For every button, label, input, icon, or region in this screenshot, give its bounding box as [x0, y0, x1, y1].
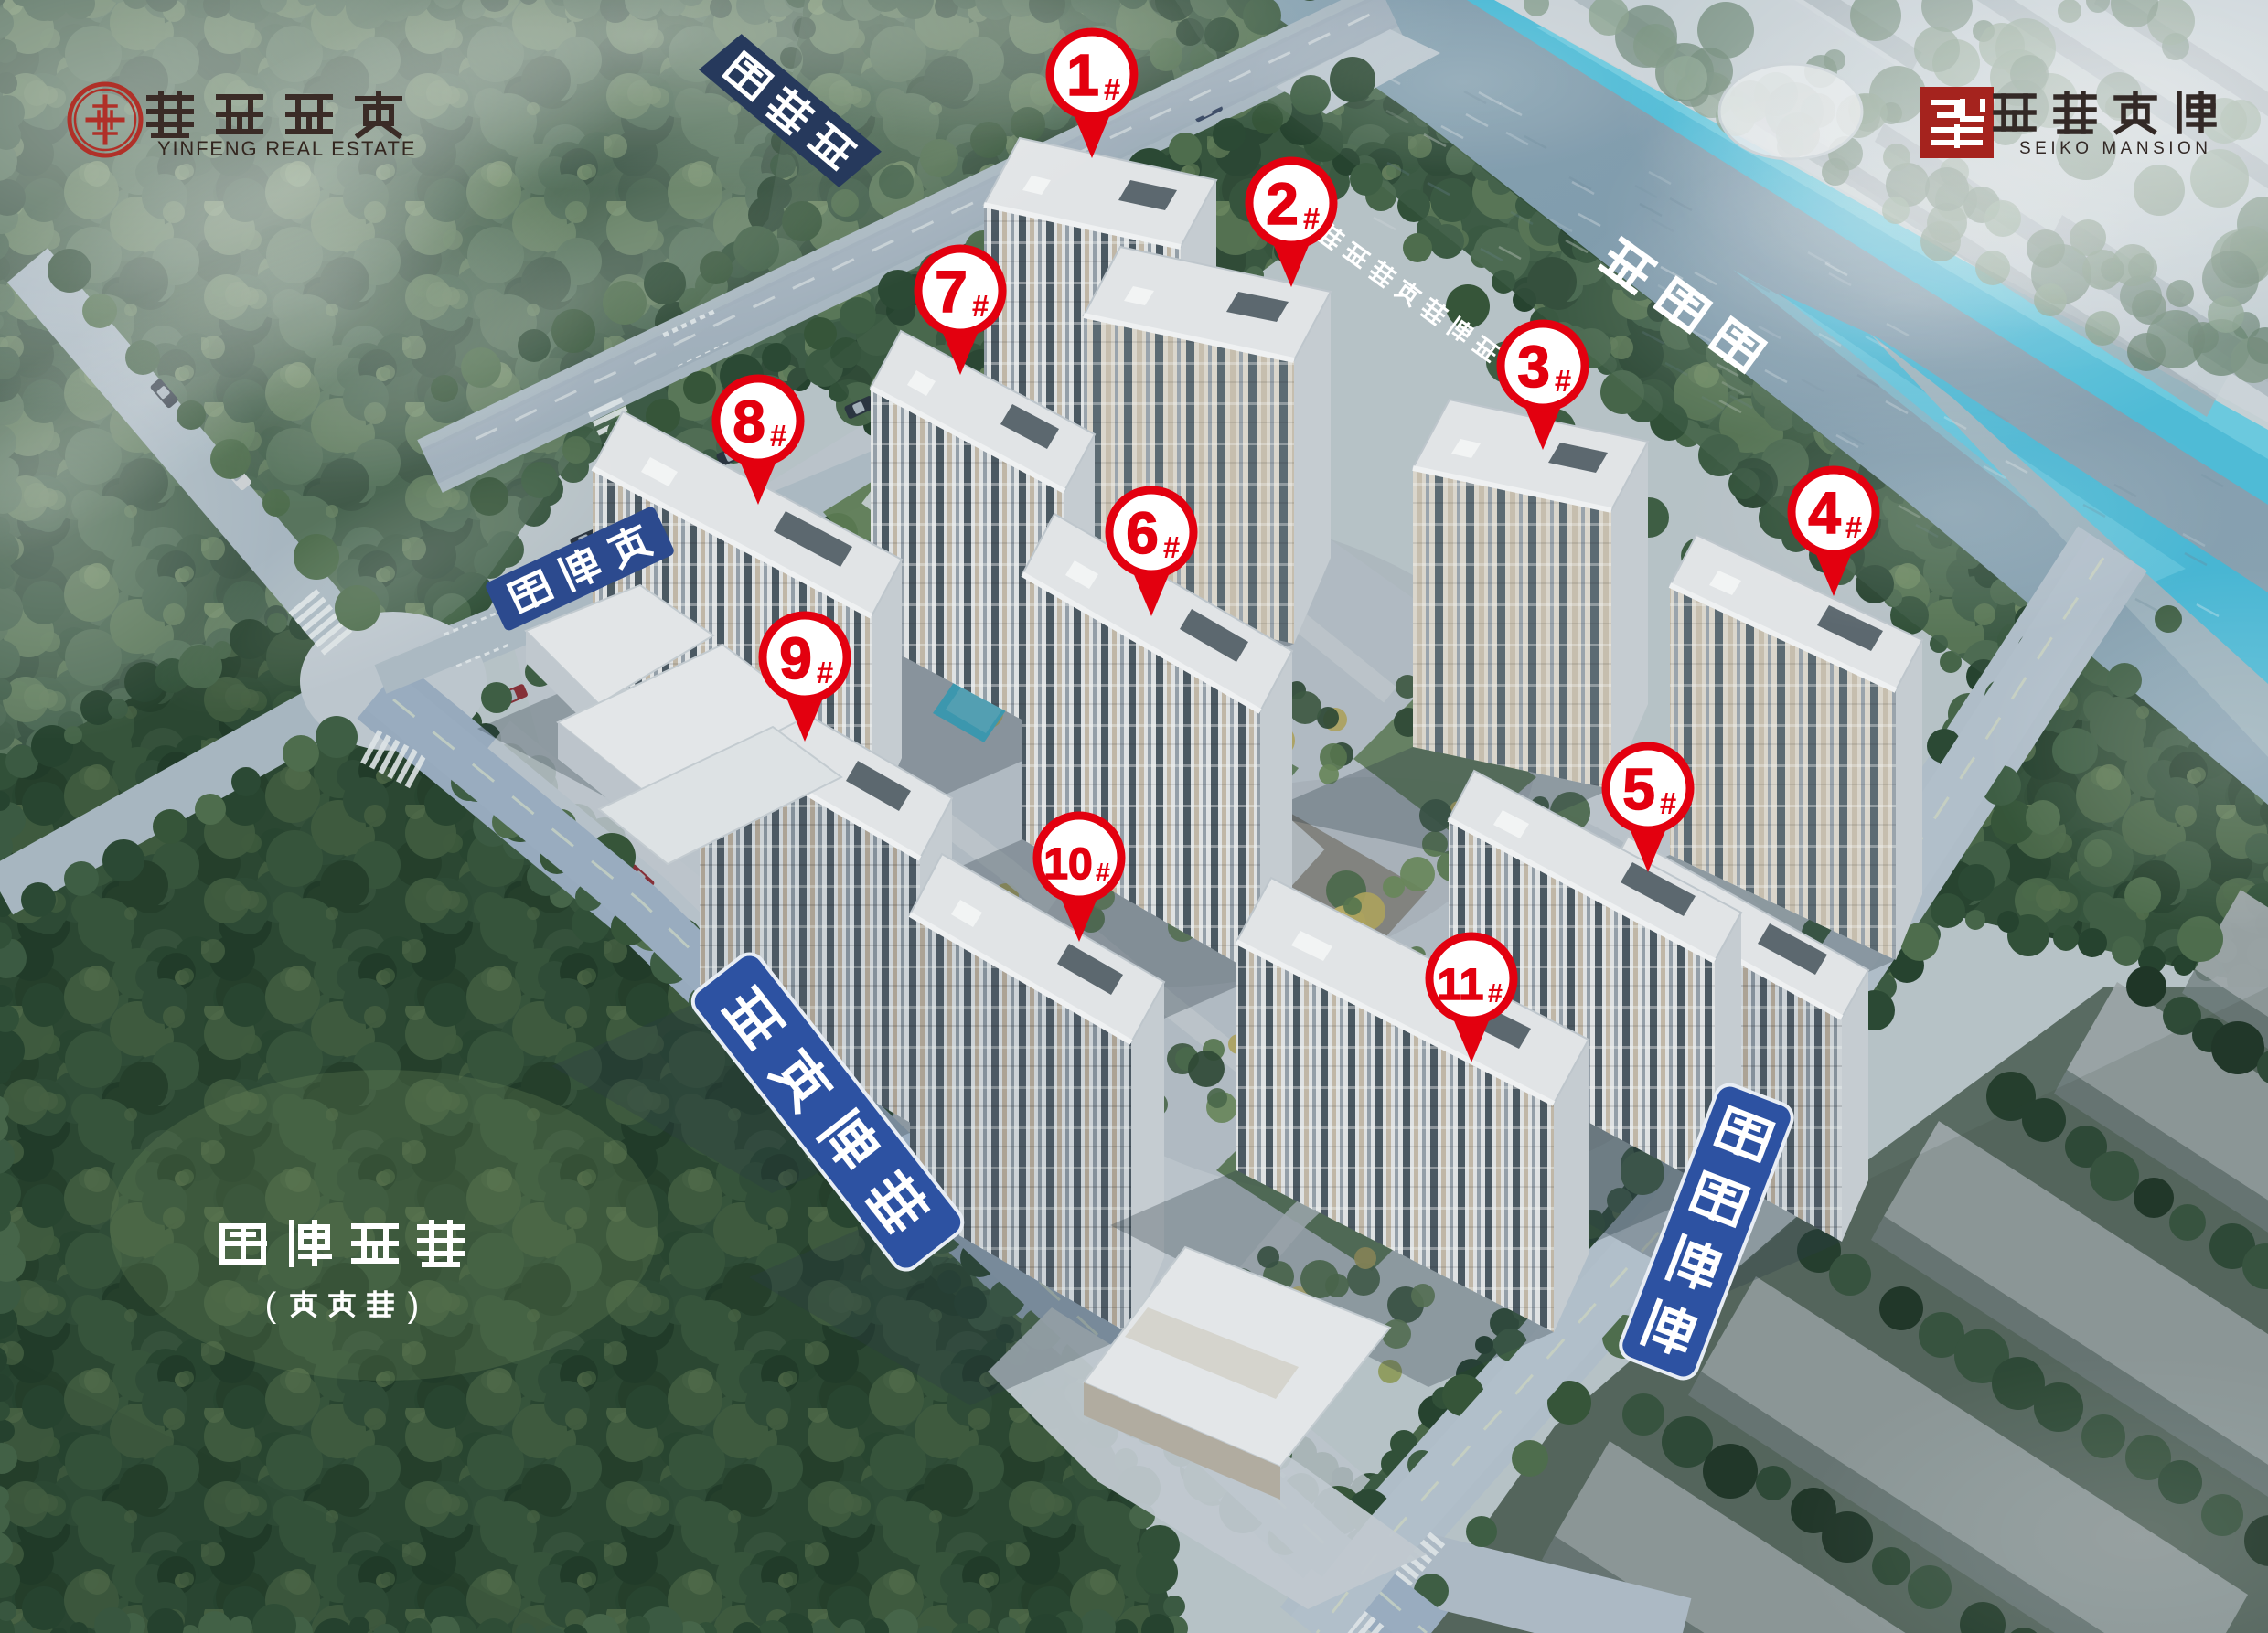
- svg-text:6: 6: [1126, 500, 1159, 566]
- svg-text:#: #: [817, 656, 833, 689]
- svg-text:): ): [408, 1286, 420, 1325]
- svg-text:#: #: [1104, 72, 1120, 106]
- svg-text:#: #: [770, 419, 786, 453]
- svg-text:YINFENG REAL ESTATE: YINFENG REAL ESTATE: [157, 137, 416, 160]
- svg-text:7: 7: [935, 259, 968, 325]
- svg-text:3: 3: [1517, 334, 1550, 400]
- svg-text:8: 8: [733, 389, 765, 454]
- svg-text:9: 9: [779, 625, 812, 691]
- svg-text:2: 2: [1266, 171, 1299, 237]
- svg-text:1: 1: [1066, 42, 1099, 108]
- svg-text:5: 5: [1622, 756, 1655, 822]
- svg-text:#: #: [1096, 859, 1110, 888]
- svg-text:#: #: [972, 289, 989, 323]
- svg-text:#: #: [1163, 530, 1180, 564]
- svg-text:#: #: [1488, 979, 1503, 1009]
- svg-text:#: #: [1660, 786, 1676, 820]
- svg-text:#: #: [1845, 510, 1862, 544]
- svg-text:SEIKO MANSION: SEIKO MANSION: [2019, 139, 2212, 158]
- svg-text:11: 11: [1438, 961, 1484, 1009]
- svg-text:4: 4: [1808, 480, 1841, 546]
- svg-text:#: #: [1303, 201, 1320, 235]
- svg-text:10: 10: [1043, 840, 1092, 889]
- svg-text:(: (: [265, 1286, 277, 1325]
- svg-text:#: #: [1555, 364, 1571, 398]
